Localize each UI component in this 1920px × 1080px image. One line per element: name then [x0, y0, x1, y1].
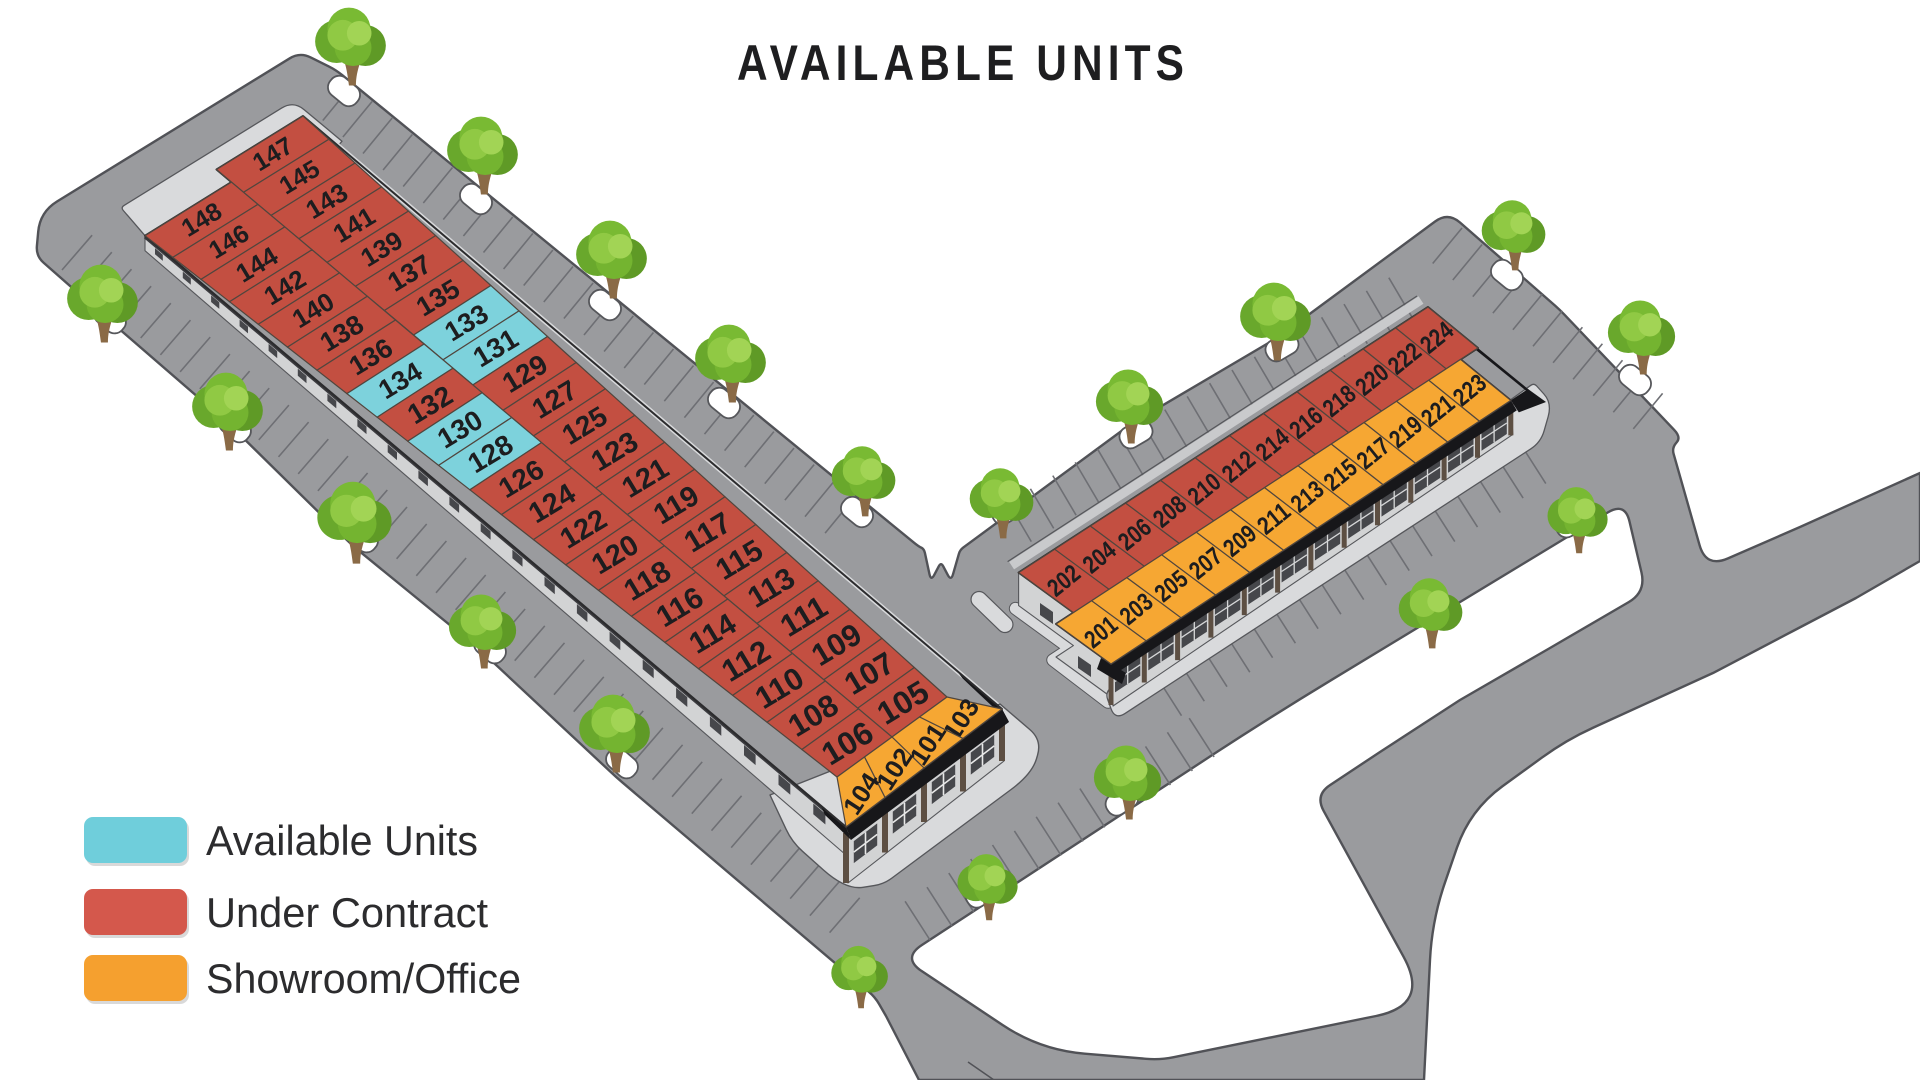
- svg-text:Under Contract: Under Contract: [206, 889, 488, 936]
- svg-text:AVAILABLE UNITS: AVAILABLE UNITS: [737, 35, 1189, 91]
- svg-text:Showroom/Office: Showroom/Office: [206, 955, 521, 1002]
- svg-text:Available Units: Available Units: [206, 817, 478, 864]
